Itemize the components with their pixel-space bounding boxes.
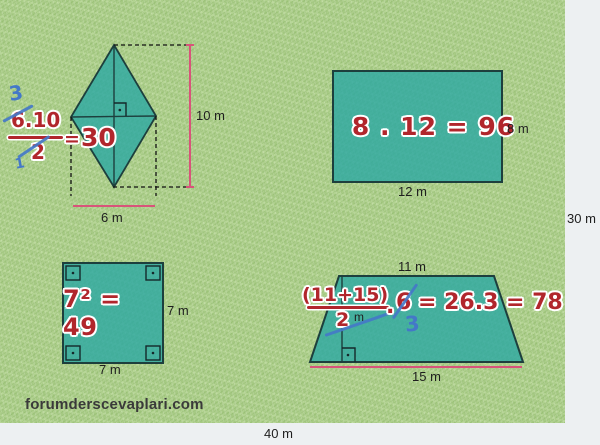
worksheet: 3 6.10 2 1 = 30 10 m 6 m 8 . 12 = 96 8 m… [0,0,600,445]
grass-field [0,0,565,423]
field-bottom-label: 40 m [264,427,293,440]
field-right-label: 30 m [567,212,596,225]
